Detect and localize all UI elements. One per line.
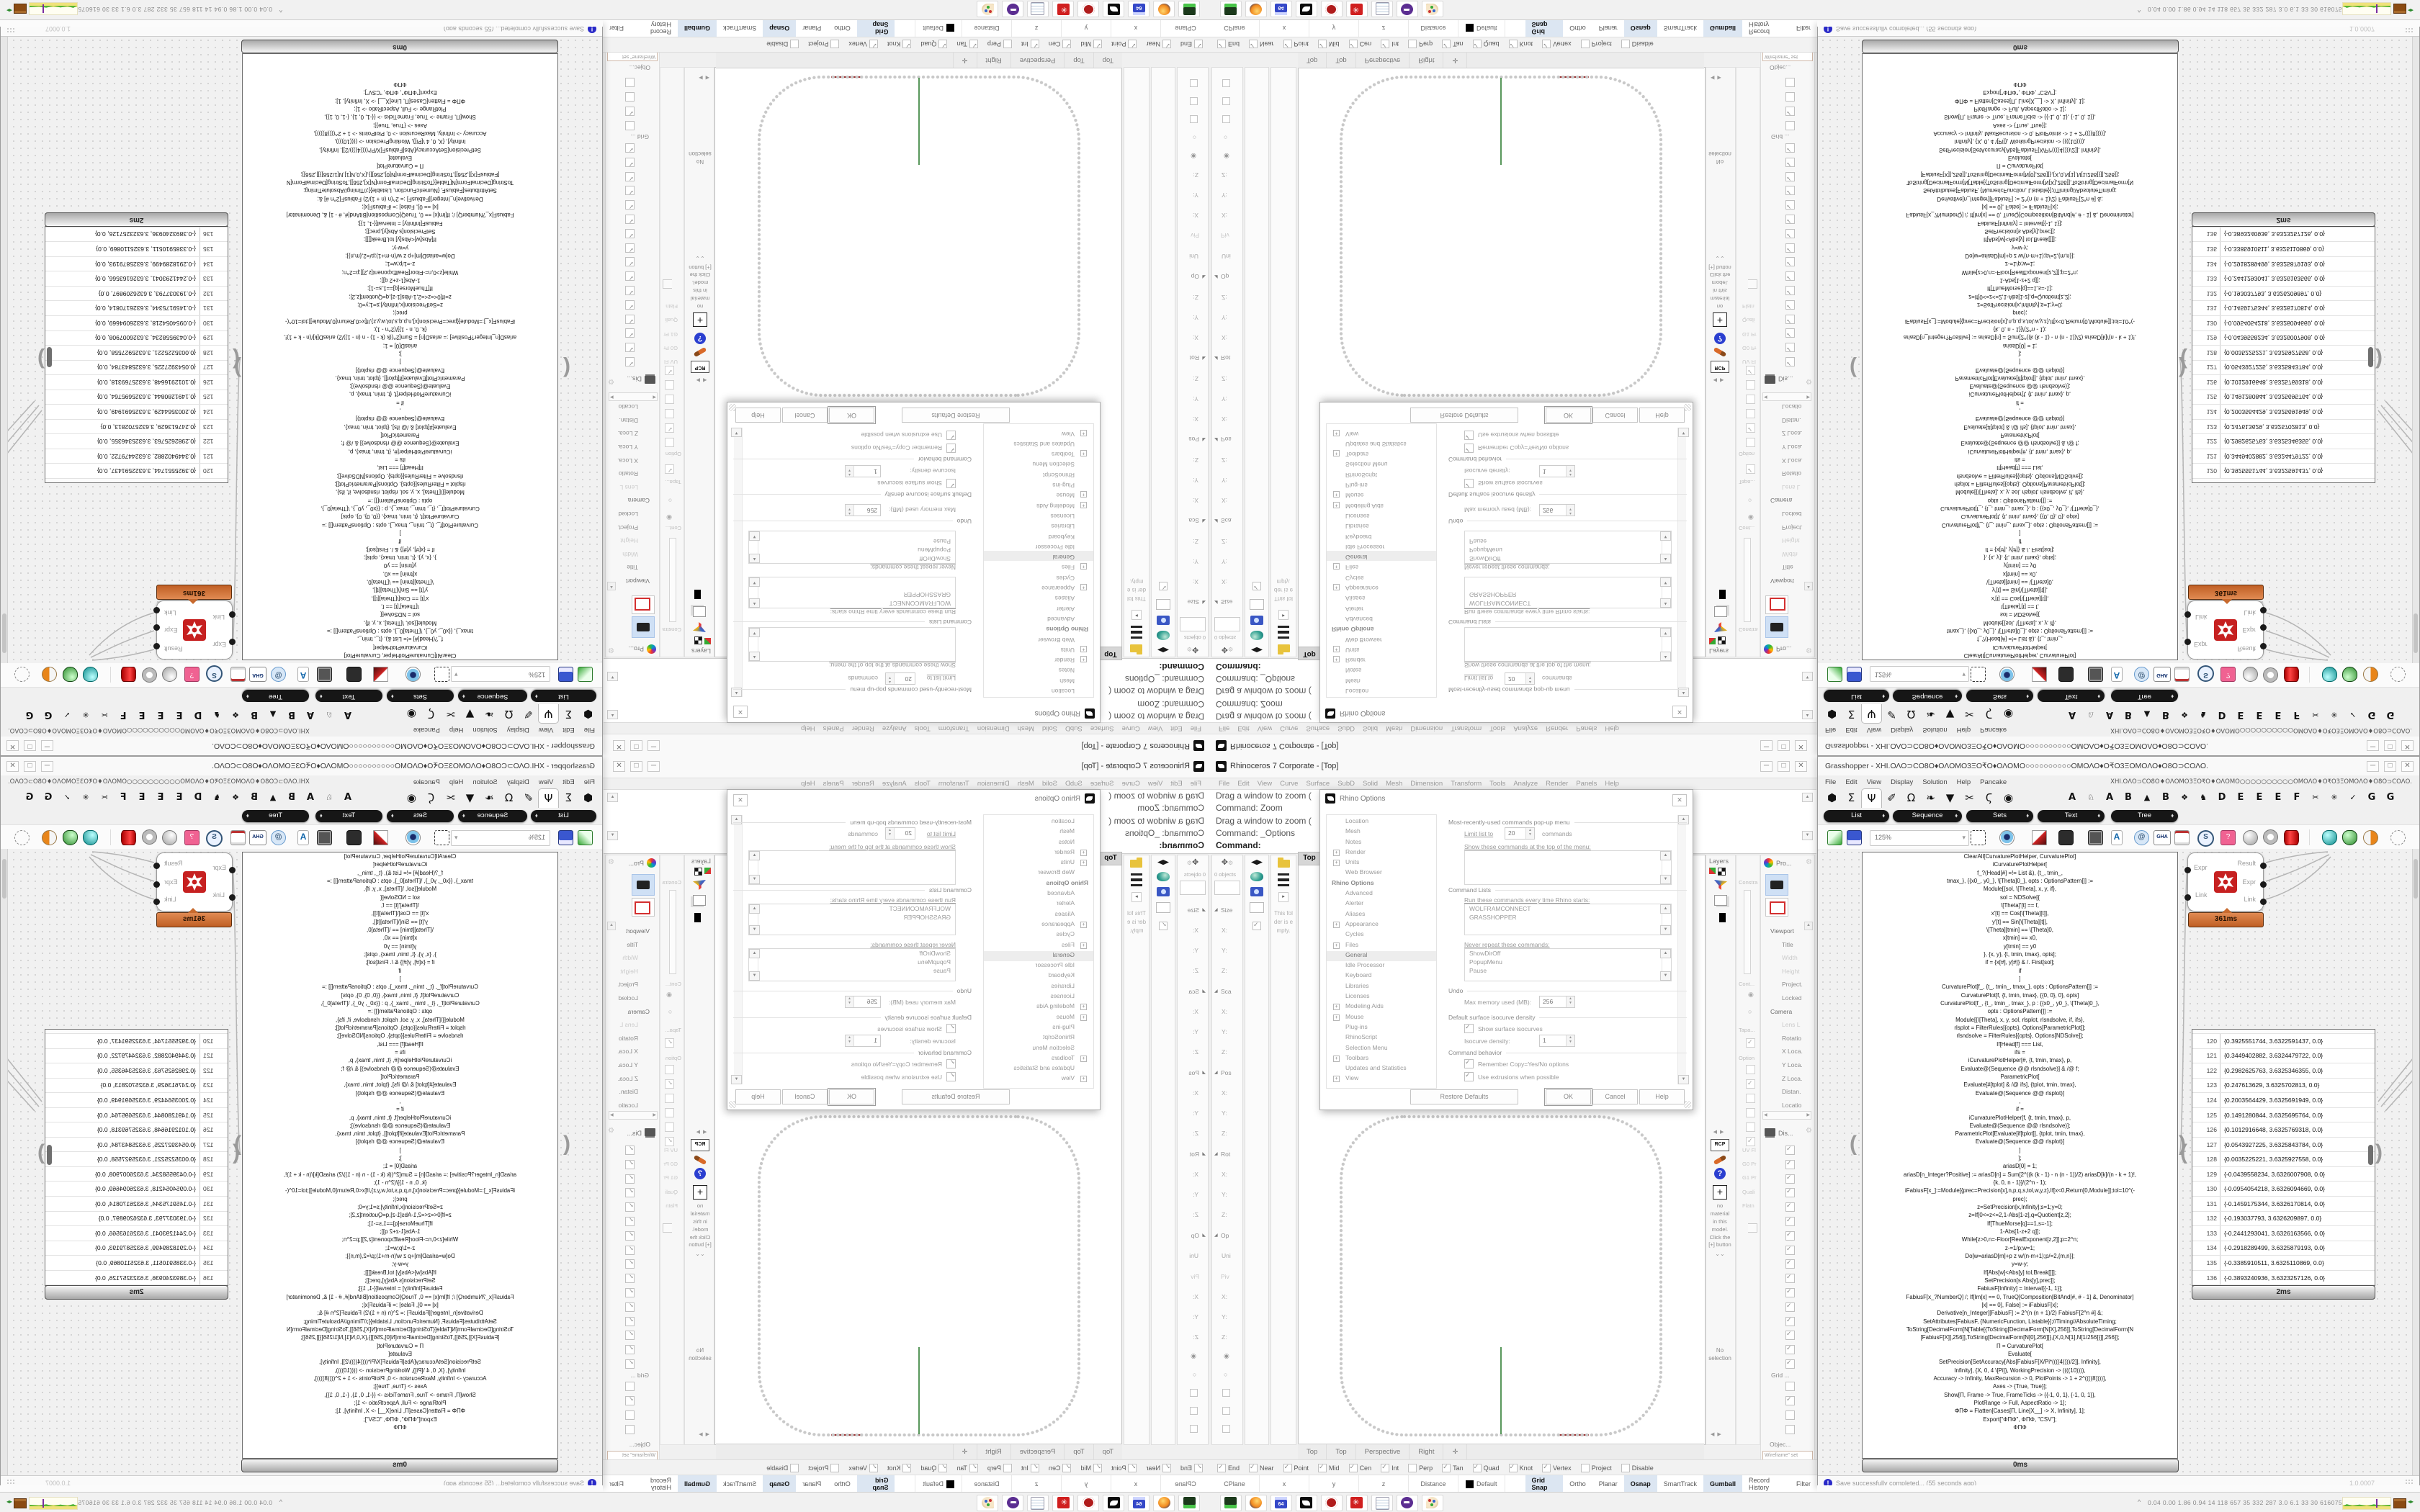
options-tree-item[interactable]: Licenses [1327,510,1436,520]
plugin-tab[interactable]: B [2156,788,2175,807]
osnap-toggle[interactable]: End [1180,1464,1203,1472]
viewport-tab[interactable]: Top [1298,1444,1327,1460]
property-row[interactable]: Distan. [606,1088,659,1102]
resize-grip[interactable] [729,404,736,411]
scroll-up-icon[interactable]: ▲ [749,598,760,608]
vertical-slider[interactable] [669,538,676,622]
menu-item[interactable]: View [1867,726,1881,734]
menu-item[interactable]: View [1867,778,1881,786]
boxedit-row[interactable]: Op [1212,1232,1242,1241]
options-tree-item[interactable]: Updates and Statistics [1327,438,1436,448]
property-row[interactable]: Z Loca. [1761,424,1814,438]
display-checkbox[interactable] [1785,229,1795,238]
menu-item[interactable]: View [1148,725,1162,733]
options-tree-item[interactable]: RhinoScript [1327,1033,1436,1043]
component-tab-icon[interactable]: Ϛ [1979,704,1999,724]
tray-expand-icon[interactable]: ^ [279,1498,282,1506]
horizontal-scrollbar[interactable] [609,392,658,401]
status-toggle[interactable]: Osnap [1624,19,1657,37]
output-port[interactable] [2260,643,2267,649]
component-tab-icon[interactable]: ❧ [480,704,499,724]
new-document-icon[interactable] [578,667,593,682]
add-viewport-tab[interactable]: ✛ [1443,52,1467,68]
osnap-toggle[interactable]: Perp [1408,40,1433,49]
property-row[interactable]: Width [1761,954,1814,968]
component-tab-icon[interactable]: ◉ [1999,788,2018,808]
layer-checker-icon[interactable] [1718,868,1726,876]
input-port[interactable] [2184,894,2191,901]
display-checkbox[interactable] [625,357,635,366]
osnap-checkbox[interactable] [869,40,878,49]
output-port[interactable] [2260,624,2267,631]
property-row[interactable]: Locked [1761,504,1814,518]
grid-checkbox[interactable] [1785,1382,1795,1391]
torus-icon[interactable] [2264,830,2277,844]
output-port[interactable] [2260,863,2267,869]
osnap-checkbox[interactable] [1621,40,1630,49]
property-row[interactable]: Lens L [606,1021,659,1035]
output-port[interactable] [2260,899,2267,905]
status-cell[interactable]: z [1011,1475,1061,1493]
cancel-button[interactable]: Cancel [1592,1089,1638,1104]
limit-spinner[interactable]: 20▲▼ [885,672,915,685]
boxedit-row[interactable]: X: [1178,210,1208,219]
new-document-icon[interactable] [1827,667,1842,682]
horizontal-scrollbar[interactable] [609,1111,658,1120]
plugin-tab[interactable]: ✓ [58,788,76,807]
never-repeat-listbox[interactable]: ShowDirOffPopupMenuPause ▲▼ [1464,531,1672,564]
options-tree-item[interactable]: Render [1327,848,1436,858]
display-checkbox[interactable] [625,328,635,338]
brush-icon[interactable] [1713,1155,1727,1165]
property-row[interactable]: Width [606,544,659,558]
component-tab-icon[interactable]: Ϛ [1979,788,1999,808]
panel-checkbox[interactable] [1159,582,1168,590]
component-tab-icon[interactable]: Ψ [1861,704,1882,724]
grasshopper-canvas[interactable]: ( ) ClearAll[CurvaturePlotHelper, Curvat… [1,849,601,1475]
panel-checkbox[interactable] [1252,922,1261,930]
boxedit-row[interactable]: Op [1178,271,1208,280]
subcategory-pill[interactable]: Sequence [1893,810,1962,822]
add-viewport-tab[interactable]: ✛ [953,52,977,68]
options-tree-item[interactable]: Files [984,941,1093,951]
gear-icon[interactable]: ⚙ [608,377,614,385]
scroll-up-icon[interactable]: ▲ [607,710,618,719]
menu-item[interactable]: Edit [563,778,574,786]
property-row[interactable]: Project. [606,518,659,531]
tray-sparkline-icon[interactable] [29,1497,78,1510]
boxedit-row[interactable]: Piv [1178,230,1208,239]
preview-half-icon[interactable] [42,830,57,845]
zoom-extents-icon[interactable] [1971,667,1986,682]
boxedit-row[interactable]: Y: [1212,1028,1242,1038]
taskbar-firefox-icon[interactable] [1153,1495,1175,1511]
boxedit-row[interactable] [1212,1371,1242,1380]
osnap-checkbox[interactable] [1408,1464,1417,1472]
subcategory-pill[interactable]: Sets [387,810,454,822]
scroll-up-icon[interactable]: ▲ [749,554,760,563]
undo-memory-spinner[interactable]: 256▲▼ [1539,504,1575,516]
display-checkbox[interactable] [1785,1345,1795,1354]
chevron-down-icon[interactable]: ⌄⌄ [686,1251,714,1257]
osnap-checkbox[interactable] [1542,1464,1551,1472]
menu-item[interactable]: SubD [1065,725,1083,733]
osnap-toggle[interactable]: Tan [956,1464,978,1472]
property-row[interactable]: Locked [606,504,659,518]
cylinder-icon[interactable] [2284,830,2299,845]
plugin-tab[interactable]: ✓ [2344,705,2362,724]
scroll-up-icon[interactable]: ▲ [749,904,760,914]
scroll-down-icon[interactable]: ▼ [607,831,618,840]
plugin-tab[interactable]: B [282,705,301,724]
filter-input[interactable] [1214,881,1240,895]
osnap-toggle[interactable]: Quad [1473,40,1500,49]
property-row[interactable]: Project. [1761,518,1814,531]
component-tab-icon[interactable]: ⬢ [1822,704,1842,724]
property-row[interactable]: Distan. [606,410,659,424]
osnap-checkbox[interactable] [1581,1464,1590,1472]
property-row[interactable]: Height [1761,968,1814,981]
property-row[interactable]: Rotatio [606,464,659,478]
options-tree-item[interactable]: Files [1327,561,1436,571]
code-panel[interactable]: ClearAll[CurvaturePlotHelper, CurvatureP… [242,852,558,1459]
options-tree-item[interactable]: Notes [1327,838,1436,848]
options-tree-item[interactable]: Updates and Statistics [984,1064,1093,1074]
text-tag-icon[interactable]: A [297,667,309,682]
dialog-close-icon[interactable]: ✕ [1672,794,1687,806]
script-search-icon[interactable]: S [2197,830,2214,847]
output-port[interactable] [2260,607,2267,613]
code-panel[interactable]: ClearAll[CurvaturePlotHelper, CurvatureP… [1862,852,2178,1459]
boxedit-row[interactable]: X: [1212,1293,1242,1302]
expand-icon[interactable]: ▸ [1278,610,1289,620]
options-tree-item[interactable]: Aliases [1327,910,1436,920]
options-tree-item[interactable]: View [984,427,1093,437]
close-button[interactable]: ✕ [6,761,19,772]
options-tree-item[interactable]: Aliases [984,592,1093,602]
hamburger-icon[interactable] [1131,626,1142,639]
script-search-icon[interactable]: S [206,665,223,682]
taskbar-palette-icon[interactable] [977,1,998,17]
taskbar-palette-icon[interactable] [1422,1495,1443,1511]
menu-item[interactable]: File [584,778,595,786]
rhino-titlebar[interactable]: Rhinoceros 7 Corporate - [Top] ─ □ ✕ [603,734,1210,756]
options-tree-item[interactable]: Cycles [984,930,1093,940]
options-tree-item[interactable]: Mouse [984,489,1093,499]
rcp-icon[interactable]: RCP [1711,1139,1729,1151]
subcategory-pill[interactable]: Tree [242,810,309,822]
status-toggle[interactable]: Gumball [678,19,717,37]
ok-button[interactable]: OK [829,1089,874,1104]
menu-item[interactable]: File [1219,725,1229,733]
options-tree-item[interactable]: Modeling Aids [1327,1002,1436,1012]
menu-item[interactable]: Surface [1306,780,1330,788]
property-row[interactable]: Camera [1761,1008,1814,1022]
scroll-down-icon[interactable]: ▼ [749,577,760,587]
plugin-tab[interactable]: G [2381,788,2400,807]
taskbar-notepad-icon[interactable] [1371,1495,1393,1511]
display-checkbox[interactable] [1785,1331,1795,1340]
boxedit-row[interactable]: Z: [1212,1048,1242,1058]
subcategory-pill[interactable]: Tree [242,690,309,702]
subcategory-pill[interactable]: Tree [2111,690,2178,702]
preview-mesh-icon[interactable] [346,667,362,682]
component-tab-icon[interactable]: ⬢ [578,704,598,724]
subcategory-pill[interactable]: Sequence [1893,690,1962,702]
restore-defaults-button[interactable]: Restore Defaults [902,1089,1010,1104]
menu-item[interactable]: Mesh [1018,725,1034,733]
data-panel[interactable]: 120 {0.3925551744, 3.6322591437, 0.0} 12… [45,226,228,483]
graduation-cap-icon[interactable] [1251,646,1263,652]
status-cell[interactable]: CPlane [1210,19,1260,37]
checkbox[interactable] [1746,409,1755,418]
osnap-checkbox[interactable] [1542,40,1551,49]
tray-network-icon[interactable]: ◂▸ [2408,1498,2414,1505]
preview-on-icon[interactable] [63,830,78,845]
taskbar-floppy-64-icon[interactable]: 64 [1128,1,1149,17]
tray-crate-icon[interactable] [2393,1498,2406,1508]
menu-item[interactable]: Pancake [1980,726,2007,734]
menu-item[interactable]: File [1191,780,1201,788]
osnap-checkbox[interactable] [1128,40,1137,49]
isocurve-checkbox-row[interactable]: Show surface isocurves [1464,1024,1543,1033]
menu-item[interactable]: Dimension [1410,725,1443,733]
options-tree-item[interactable]: Selection Menu [984,1044,1093,1054]
layers-panel-title[interactable]: Layers [685,647,714,657]
menu-item[interactable]: Solid [1363,780,1378,788]
boxedit-row[interactable]: Size [1212,596,1242,606]
panel-nav-arrows[interactable]: ◀▶ [686,1129,714,1135]
status-toggle[interactable]: Ortho [1563,19,1592,37]
boxedit-row[interactable]: Pos [1178,433,1208,443]
options-tree-item[interactable]: Rhino Options [984,879,1093,889]
subcategory-pill[interactable]: Tree [2111,810,2178,822]
menu-item[interactable]: Edit [1170,780,1182,788]
display-checkbox[interactable] [625,1302,635,1312]
isocurve-density-spinner[interactable]: 1▲▼ [845,465,881,477]
property-row[interactable]: Viewport [1761,927,1814,941]
material-properties-icon[interactable] [1765,898,1788,917]
cancel-button[interactable]: Cancel [1592,408,1638,423]
plugin-tab[interactable]: A [2100,788,2119,807]
tray-expand-icon[interactable]: ^ [2138,1498,2141,1506]
boxedit-row[interactable]: X: [1212,332,1242,341]
listbox-item[interactable]: WOLFRAMCONNECT [1465,904,1671,913]
boxedit-row[interactable] [1178,96,1208,105]
component-tab-icon[interactable]: ❧ [480,788,499,808]
remote-icon[interactable]: @ [2134,830,2149,845]
add-material-button[interactable]: + [693,1185,707,1200]
input-port[interactable] [2184,611,2191,618]
plugin-tab[interactable]: ✂ [95,705,114,724]
osnap-toggle[interactable]: Disable [1621,40,1654,49]
layer-black-swatch[interactable] [1719,590,1726,599]
component-tab-icon[interactable]: ⬢ [1822,788,1842,808]
boxedit-row[interactable] [1212,1407,1242,1416]
plugin-tab[interactable]: B [245,705,264,724]
help-button[interactable]: Help [735,1089,781,1104]
taskbar-zip-drive-icon[interactable] [1178,1495,1200,1511]
plugin-tab[interactable]: A [2100,705,2119,724]
menu-item[interactable]: Panels [823,725,844,733]
options-tree-item[interactable]: Mesh [984,674,1093,684]
component-tab-icon[interactable]: ▼ [460,788,480,808]
viewport-tab[interactable]: Perspective [1010,52,1065,68]
osnap-checkbox[interactable] [790,40,799,49]
listbox-item[interactable]: PopupMenu [1465,546,1671,554]
package-icon[interactable]: ? [184,830,200,845]
taskbar-floppy-64-icon[interactable]: 64 [1270,1495,1292,1511]
property-row[interactable]: Viewport [606,927,659,941]
osnap-toggle[interactable]: Project [808,1464,839,1472]
layer-pages-icon[interactable] [693,606,706,617]
checkbox[interactable] [1746,438,1755,447]
panel-nav-arrows[interactable]: ◀▶ [1711,1431,1724,1437]
options-tree-item[interactable]: Plug-ins [984,479,1093,489]
sphere-icon[interactable] [1157,872,1170,881]
component-tab-icon[interactable]: Ω [499,704,519,724]
display-checkbox[interactable] [625,1331,635,1340]
taskbar-firefox-icon[interactable] [1153,1,1175,17]
property-row[interactable]: X Loca. [1761,451,1814,464]
options-tree-item[interactable]: Units [1327,644,1436,654]
maximize-button[interactable]: □ [630,761,642,772]
menu-item[interactable]: Tools [1489,725,1505,733]
menu-item[interactable]: File [1825,778,1836,786]
options-tree-item[interactable]: Idle Processor [1327,961,1436,971]
boxedit-row[interactable] [1212,96,1242,105]
gumball-icon[interactable]: ✥⚙ [1178,645,1208,654]
osnap-checkbox[interactable] [1194,1464,1203,1472]
layer-color-icon[interactable] [704,868,711,874]
expand-icon[interactable]: ▸ [1278,892,1289,902]
listbox-item[interactable]: ShowDirOff [749,554,955,563]
display-checkbox[interactable] [625,271,635,281]
boxedit-row[interactable]: Z: [1212,1211,1242,1220]
viewport-properties-icon[interactable] [632,874,655,896]
boxedit-row[interactable]: Y: [1178,474,1208,484]
osnap-toggle[interactable]: End [1180,40,1203,49]
display-checkbox[interactable] [1785,1288,1795,1297]
tray-sparkline-icon[interactable] [2342,2,2391,15]
plugin-tab[interactable]: ♞ [2194,788,2213,807]
checkbox[interactable] [665,366,674,375]
use-extrusions-checkbox-row[interactable]: Use extrusions when possible [861,431,956,440]
osnap-toggle[interactable]: Knot [887,40,912,49]
options-tree-item[interactable]: Licenses [1327,992,1436,1002]
osnap-toggle[interactable]: Project [808,40,839,49]
boxedit-row[interactable]: Y: [1178,1028,1208,1038]
isocurve-checkbox-row[interactable]: Show surface isocurves [877,1024,956,1033]
options-tree-item[interactable]: Units [1327,858,1436,868]
options-tree-item[interactable]: Updates and Statistics [1327,1064,1436,1074]
tray-expand-icon[interactable]: ^ [2138,6,2141,14]
menu-item[interactable]: Transform [1451,780,1482,788]
speaker-icon[interactable] [2088,830,2103,845]
osnap-toggle[interactable]: Knot [1509,1464,1533,1472]
subcategory-pill[interactable]: Text [315,810,382,822]
torus-icon[interactable] [143,668,156,682]
menu-item[interactable]: Tools [915,725,931,733]
gumball-icon[interactable]: ✥⚙ [1178,858,1208,867]
display-checkbox[interactable] [625,172,635,181]
radio-off[interactable]: ○ [1748,1008,1752,1015]
plugin-tab[interactable]: F [114,705,133,724]
display-checkbox[interactable] [625,1259,635,1269]
component-tab-icon[interactable]: ✐ [1882,704,1901,724]
gha-icon[interactable]: GHA [249,830,266,845]
listbox-item[interactable]: ShowDirOff [1465,949,1671,958]
osnap-checkbox[interactable] [1062,1464,1071,1472]
plugin-tab[interactable]: F [2287,705,2306,724]
grid-checkbox[interactable] [625,121,635,130]
input-port[interactable] [229,867,236,873]
boxedit-row[interactable]: X: [1178,1008,1208,1017]
options-tree-item[interactable]: Mesh [1327,674,1436,684]
options-tree-item[interactable]: Web Browser [1327,633,1436,643]
grasshopper-canvas[interactable]: ( ) ClearAll[CurvaturePlotHelper, Curvat… [1,37,601,663]
display-checkbox[interactable] [625,1146,635,1155]
osnap-toggle[interactable]: Mid [1318,40,1340,49]
property-row[interactable]: Lens L [606,477,659,491]
property-row[interactable]: Height [606,531,659,545]
layer-pages-icon[interactable] [1714,895,1727,906]
status-cell[interactable]: z [1359,19,1409,37]
boxedit-row[interactable]: Piv [1212,230,1242,239]
scroll-down-icon[interactable]: ▼ [1660,971,1671,981]
grid-checkbox[interactable] [1785,121,1795,130]
menu-item[interactable]: Edit [563,726,574,734]
boxedit-row[interactable] [1212,78,1242,87]
menu-item[interactable]: Analyze [882,725,907,733]
options-tree-item[interactable]: Location [1327,685,1436,695]
status-toggle[interactable]: Osnap [763,1475,796,1493]
layer-color-icon[interactable] [1709,868,1716,874]
menu-item[interactable]: Panels [1576,780,1597,788]
status-toggle[interactable]: Ortho [1563,1475,1592,1493]
status-toggle[interactable]: Record History [630,1475,678,1493]
menu-item[interactable]: Dimension [977,780,1010,788]
radio-on[interactable]: ◉ [666,513,672,521]
grid-checkbox[interactable] [625,92,635,102]
boxedit-row[interactable]: Y: [1178,393,1208,402]
plugin-tab[interactable]: A [2063,788,2081,807]
plugin-tab[interactable]: D [189,788,207,807]
taskbar-mathematica-icon[interactable] [1321,1,1343,17]
subcategory-pill[interactable]: Text [2038,690,2105,702]
boxedit-row[interactable] [1178,132,1208,141]
component-tab-icon[interactable]: ✂ [1960,788,1979,808]
viewport-properties-icon[interactable] [632,616,655,638]
output-port[interactable] [153,899,160,905]
options-tree-item[interactable]: Cycles [984,571,1093,581]
menu-item[interactable]: Solid [1042,780,1057,788]
layer-black-swatch[interactable] [694,913,701,922]
grid-checkbox[interactable] [1785,78,1795,87]
menu-item[interactable]: Solution [1922,778,1947,786]
text-tag-icon[interactable]: A [2111,830,2123,845]
boxedit-row[interactable]: X: [1178,1293,1208,1302]
options-tree-item[interactable]: Idle Processor [1327,541,1436,551]
menu-item[interactable]: Edit [1237,725,1249,733]
status-toggle[interactable]: Gumball [1703,19,1742,37]
remember-copy-checkbox-row[interactable]: Remember Copy=Yes/No options [851,444,956,453]
zoom-extents-icon[interactable] [434,830,449,845]
status-toggle[interactable]: Ortho [828,19,857,37]
plugin-tab[interactable]: ♘ [320,788,339,807]
boxedit-row[interactable]: Y: [1212,1313,1242,1323]
data-panel[interactable]: 120 {0.3925551744, 3.6322591437, 0.0} 12… [2192,226,2375,483]
